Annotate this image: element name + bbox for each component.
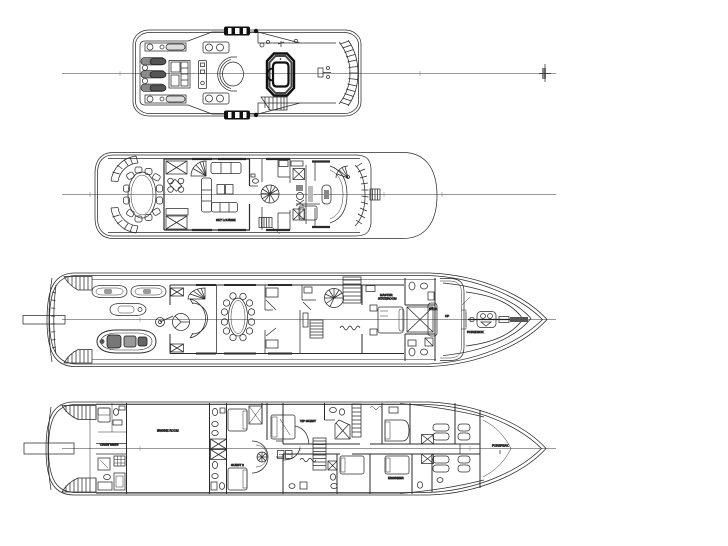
svg-text:GUEST 2: GUEST 2: [231, 463, 244, 467]
svg-text:ENGINE ROOM: ENGINE ROOM: [157, 429, 179, 433]
svg-text:ENGINEER: ENGINEER: [388, 476, 405, 480]
svg-text:CREW MESS: CREW MESS: [100, 443, 119, 447]
svg-text:FOREDECK: FOREDECK: [467, 330, 484, 334]
svg-text:STATEROOM: STATEROOM: [378, 297, 397, 301]
svg-text:UP: UP: [445, 314, 449, 318]
svg-text:FOREPEAK: FOREPEAK: [492, 444, 508, 448]
svg-text:VIP GUEST: VIP GUEST: [300, 419, 316, 423]
svg-text:STOR: STOR: [429, 307, 438, 311]
svg-text:SKY LOUNGE: SKY LOUNGE: [216, 218, 235, 222]
